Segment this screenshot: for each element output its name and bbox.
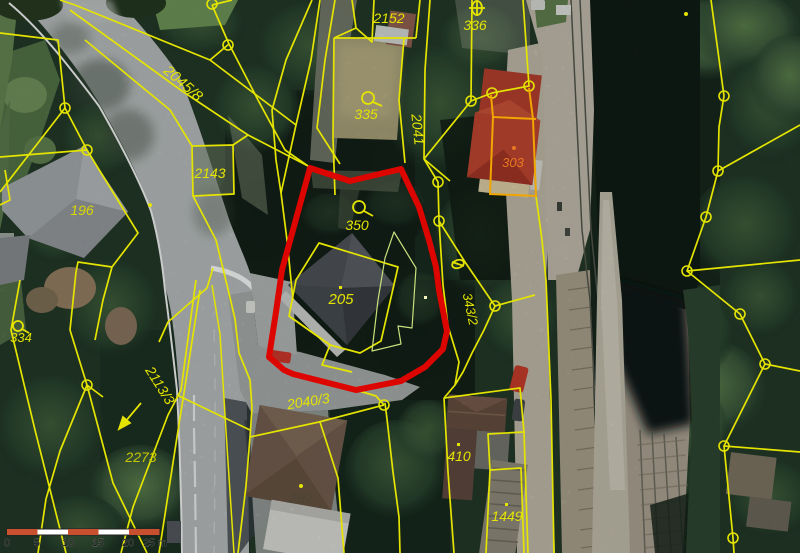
svg-text:205: 205 <box>327 291 354 308</box>
svg-text:2143: 2143 <box>193 165 225 181</box>
svg-text:0: 0 <box>4 537 10 549</box>
svg-text:20: 20 <box>122 537 134 549</box>
svg-text:335: 335 <box>354 106 378 122</box>
svg-text:1449: 1449 <box>491 508 522 524</box>
svg-text:2273: 2273 <box>124 449 156 465</box>
svg-text:15: 15 <box>92 537 104 549</box>
svg-text:2041: 2041 <box>408 112 427 146</box>
svg-text:336: 336 <box>463 17 487 33</box>
svg-text:410: 410 <box>447 448 471 464</box>
svg-text:282: 282 <box>288 490 313 506</box>
svg-text:2152: 2152 <box>372 10 404 26</box>
svg-text:5: 5 <box>34 537 40 549</box>
svg-text:196: 196 <box>70 202 94 218</box>
svg-text:350: 350 <box>345 217 369 233</box>
svg-text:303: 303 <box>502 155 524 170</box>
svg-text:25 m: 25 m <box>143 537 167 549</box>
svg-text:10: 10 <box>62 537 74 549</box>
